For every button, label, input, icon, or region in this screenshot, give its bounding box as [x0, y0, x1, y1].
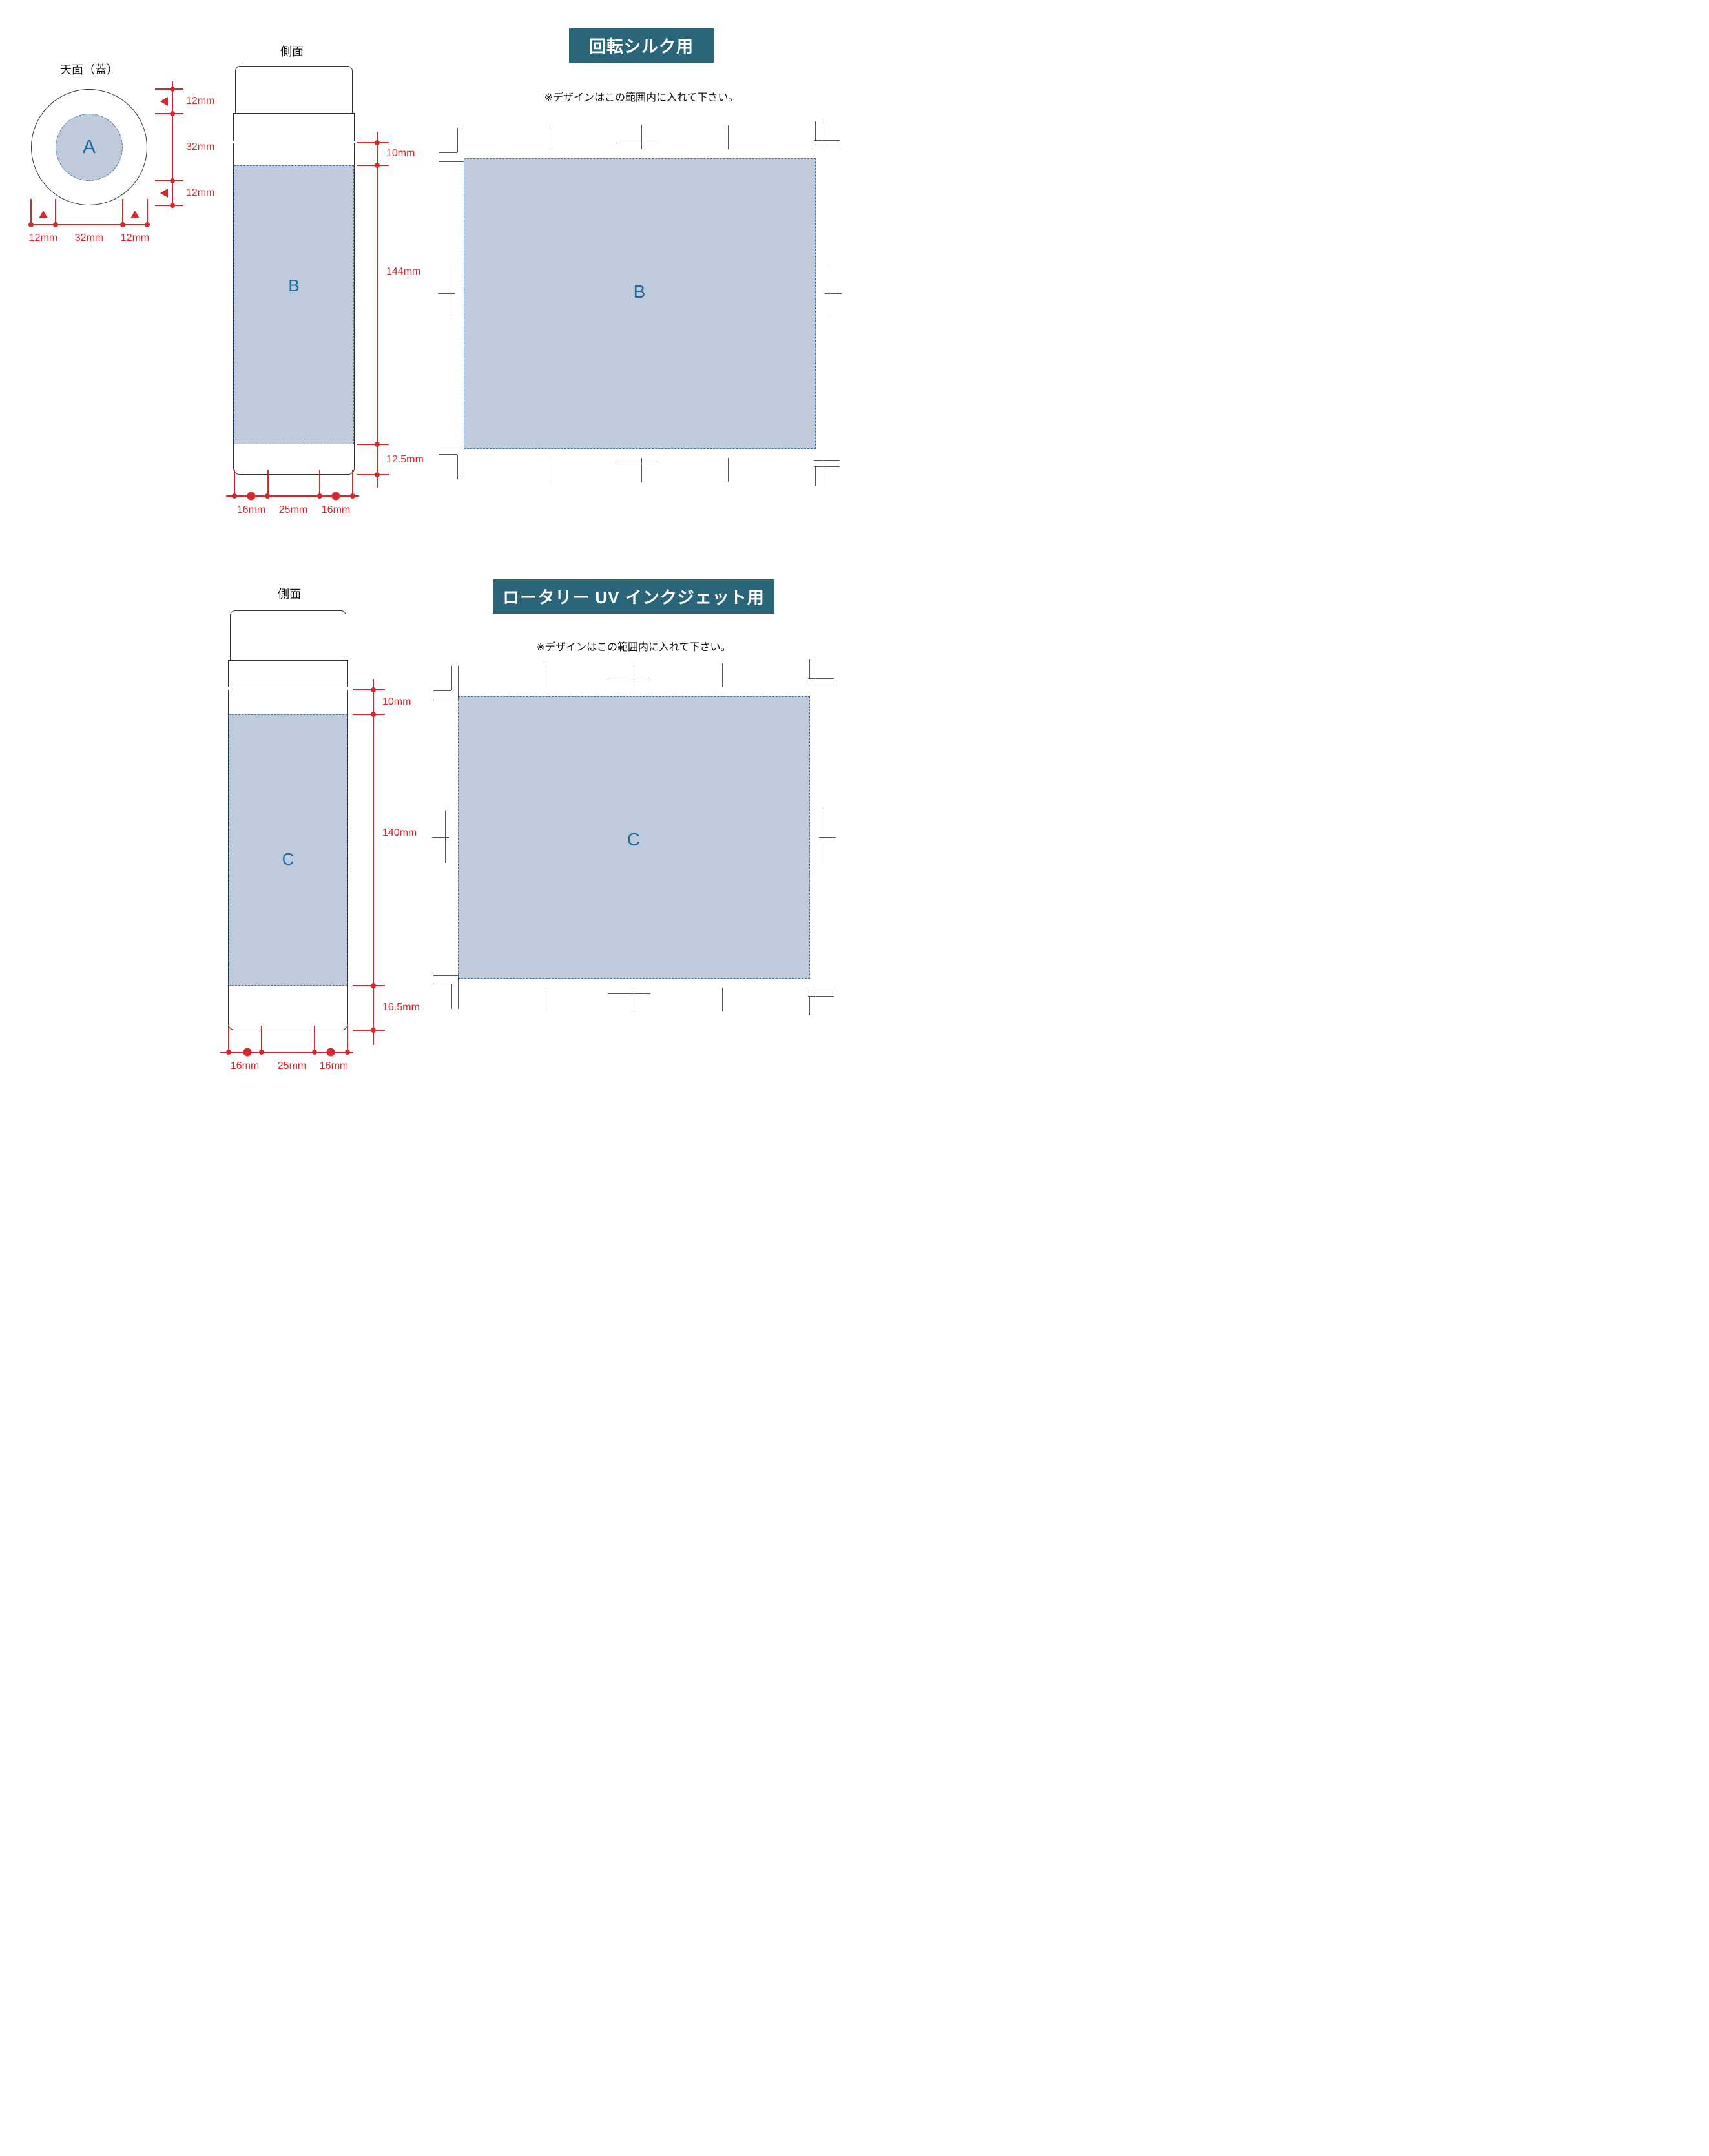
crop-mark [433, 984, 451, 984]
dim-dot [375, 472, 380, 477]
crop-mark [439, 161, 464, 162]
crop-mark [432, 837, 449, 838]
crop-mark [808, 990, 834, 990]
crop-mark [814, 147, 840, 147]
arrow-up-icon [130, 211, 140, 218]
crop-mark [641, 125, 642, 149]
dim-dot [371, 687, 376, 692]
dim-label: 16mm [320, 1061, 348, 1072]
dim-dot-large [327, 1048, 335, 1057]
dim-label: 16mm [322, 504, 350, 516]
area-label-c: C [282, 851, 295, 867]
dim-label: 32mm [186, 141, 214, 153]
crop-mark [816, 990, 816, 1015]
crop-mark [438, 293, 455, 294]
dim-dot [350, 493, 355, 499]
bottle-cap-band [233, 113, 355, 141]
dim-dot [170, 87, 175, 92]
crop-mark [722, 988, 723, 1011]
crop-mark [634, 988, 634, 1012]
dim-tick [353, 1030, 385, 1031]
dim-tick [353, 985, 385, 986]
crop-mark [433, 690, 451, 691]
dim-line [172, 81, 173, 208]
crop-mark [439, 454, 457, 455]
dim-dot [371, 983, 376, 988]
section-badge-silk: 回転シルク用 [569, 28, 714, 63]
dim-label: 10mm [386, 148, 415, 160]
crop-mark [608, 681, 650, 681]
dim-tick [155, 113, 183, 114]
dim-tick [155, 180, 183, 181]
crop-mark [816, 659, 816, 685]
crop-mark [433, 700, 458, 700]
dim-dot [226, 1050, 231, 1055]
bottle-cap-band-2 [228, 660, 348, 687]
dim-dot [120, 222, 125, 227]
dim-label: 12mm [121, 233, 149, 244]
dim-label: 32mm [75, 233, 103, 244]
crop-mark [814, 460, 840, 461]
crop-mark [616, 464, 658, 464]
dim-dot-large [332, 492, 340, 501]
dim-tick [353, 714, 385, 715]
crop-mark [822, 461, 822, 486]
dim-dot-large [247, 492, 256, 501]
dim-label: 16.5mm [382, 1002, 420, 1013]
dim-label: 10mm [382, 696, 411, 708]
dim-tick [357, 444, 389, 445]
dim-tick [353, 689, 385, 690]
dim-dot [375, 442, 380, 447]
dim-line [377, 132, 378, 488]
dim-dot [317, 493, 322, 499]
section-badge-uv: ロータリー UV インクジェット用 [493, 579, 774, 614]
dim-dot [53, 222, 58, 227]
crop-mark [815, 121, 816, 140]
crop-mark [439, 152, 457, 153]
crop-mark [825, 293, 842, 294]
crop-mark [608, 993, 650, 994]
dim-label: 16mm [231, 1061, 259, 1072]
dim-tick [155, 88, 183, 90]
dim-dot [345, 1050, 350, 1055]
crop-mark [814, 466, 840, 467]
crop-mark [808, 996, 834, 997]
bottle-cap [235, 66, 353, 114]
crop-mark [634, 663, 634, 687]
dim-label: 25mm [278, 1061, 306, 1072]
side-view-title: 側面 [280, 43, 304, 59]
area-label-b: B [288, 277, 299, 294]
dim-tick [155, 205, 183, 206]
dim-tick [357, 474, 389, 475]
crop-mark [808, 678, 834, 679]
area-label-b-unrolled: B [634, 283, 646, 301]
dim-line [30, 224, 149, 225]
unrolled-print-area-b [464, 158, 816, 449]
dim-label: 140mm [382, 827, 417, 839]
dim-label: 144mm [386, 266, 420, 278]
crop-mark [464, 446, 464, 479]
dim-dot [375, 163, 380, 168]
print-template-sheet: 天面（蓋） A 12mm 32mm 12mm 12mm 32mm 12mm 側面… [0, 0, 854, 1078]
crop-mark [457, 128, 458, 152]
dim-dot [265, 493, 270, 499]
area-label-c-unrolled: C [627, 831, 640, 849]
crop-mark [458, 975, 459, 1009]
arrow-up-icon [39, 211, 48, 218]
crop-mark [814, 140, 840, 141]
crop-mark [722, 663, 723, 687]
dim-dot [28, 222, 34, 227]
crop-mark [457, 455, 458, 479]
dim-label: 12mm [186, 96, 214, 107]
design-note-2: ※デザインはこの範囲内に入れて下さい。 [537, 638, 731, 654]
crop-mark [809, 997, 810, 1015]
crop-mark [546, 663, 546, 687]
dim-tick [357, 142, 389, 143]
arrow-left-icon [160, 97, 168, 106]
dim-dot [170, 178, 175, 183]
dim-dot [371, 1028, 376, 1033]
dim-dot [232, 493, 237, 499]
crop-mark [451, 666, 452, 690]
dim-label: 12.5mm [386, 454, 424, 466]
dim-dot [375, 140, 380, 145]
dim-label: 12mm [29, 233, 57, 244]
crop-mark [728, 125, 729, 149]
dim-dot [145, 222, 150, 227]
area-label-a: A [83, 138, 96, 157]
crop-mark [433, 975, 458, 976]
crop-mark [641, 458, 642, 482]
crop-mark [546, 988, 546, 1011]
side-view-title-2: 側面 [278, 585, 301, 602]
crop-mark [451, 984, 452, 1009]
dim-dot-large [243, 1048, 252, 1057]
dim-dot [312, 1050, 317, 1055]
bottle-cap-2 [230, 610, 346, 661]
dim-tick [357, 165, 389, 166]
top-view-title: 天面（蓋） [60, 61, 118, 78]
crop-mark [819, 837, 836, 838]
design-note: ※デザインはこの範囲内に入れて下さい。 [544, 88, 739, 104]
crop-mark [458, 666, 459, 700]
crop-mark [808, 685, 834, 685]
crop-mark [728, 458, 729, 482]
dim-dot [371, 712, 376, 717]
crop-mark [815, 467, 816, 486]
dim-label: 12mm [186, 187, 214, 199]
crop-mark [464, 128, 464, 161]
bottle-print-area [234, 165, 354, 444]
dim-dot [259, 1050, 264, 1055]
dim-dot [170, 111, 175, 116]
crop-mark [809, 659, 810, 678]
dim-dot [170, 203, 175, 208]
crop-mark [552, 125, 552, 149]
arrow-left-icon [160, 189, 168, 198]
crop-mark [552, 458, 552, 482]
crop-mark [439, 446, 464, 446]
dim-label: 25mm [279, 504, 307, 516]
crop-mark [616, 143, 658, 143]
dim-label: 16mm [237, 504, 265, 516]
crop-mark [822, 121, 822, 147]
dim-line [373, 679, 374, 1045]
